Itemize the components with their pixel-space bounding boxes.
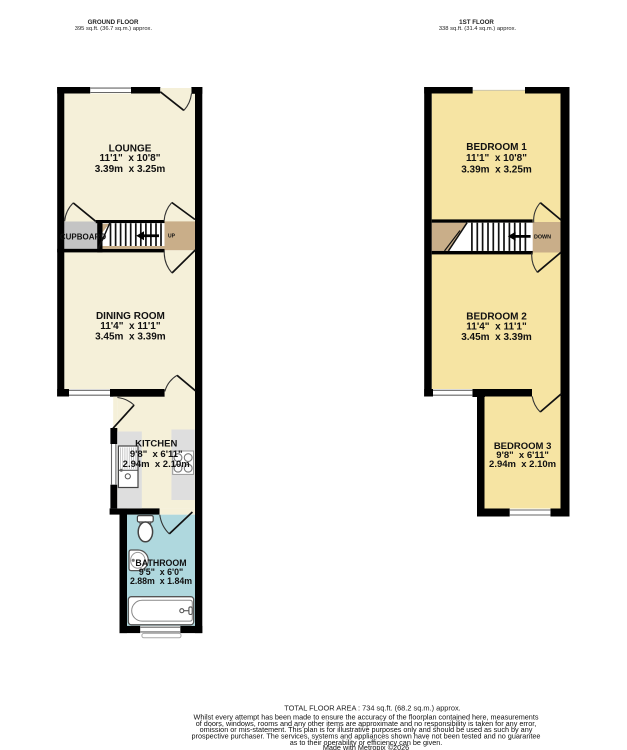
svg-text:11'4" x 11'1": 11'4" x 11'1": [466, 322, 527, 333]
svg-text:GROUND FLOOR: GROUND FLOOR: [88, 19, 139, 26]
svg-text:BEDROOM 1: BEDROOM 1: [466, 142, 527, 153]
svg-text:BEDROOM 2: BEDROOM 2: [466, 311, 527, 322]
svg-text:2.88m x 1.84m: 2.88m x 1.84m: [130, 576, 192, 586]
svg-text:3.39m x 3.25m: 3.39m x 3.25m: [95, 164, 166, 175]
svg-text:3.45m x 3.39m: 3.45m x 3.39m: [461, 332, 532, 343]
svg-text:11'1" x 10'8": 11'1" x 10'8": [466, 153, 527, 164]
svg-text:KITCHEN: KITCHEN: [135, 438, 177, 449]
svg-text:DOWN: DOWN: [534, 234, 551, 240]
svg-text:11'4" x 11'1": 11'4" x 11'1": [100, 321, 161, 332]
svg-text:TOTAL FLOOR AREA : 734 sq.ft.: TOTAL FLOOR AREA : 734 sq.ft. (68.2 sq.m…: [284, 704, 461, 713]
svg-text:DINING ROOM: DINING ROOM: [96, 311, 165, 322]
svg-text:395 sq.ft. (36.7 sq.m.) approx: 395 sq.ft. (36.7 sq.m.) approx.: [75, 26, 153, 32]
svg-text:2.94m x 2.10m: 2.94m x 2.10m: [123, 459, 190, 470]
svg-text:3.45m x 3.39m: 3.45m x 3.39m: [95, 332, 166, 343]
svg-text:3.39m x 3.25m: 3.39m x 3.25m: [461, 164, 532, 175]
svg-text:Made with Metropix ©2026: Made with Metropix ©2026: [323, 743, 409, 750]
svg-text:CUPBOARD: CUPBOARD: [60, 232, 106, 241]
svg-text:2.94m x 2.10m: 2.94m x 2.10m: [489, 459, 556, 470]
svg-text:1ST FLOOR: 1ST FLOOR: [459, 19, 494, 26]
svg-text:338 sq.ft. (31.4 sq.m.) approx: 338 sq.ft. (31.4 sq.m.) approx.: [439, 26, 517, 32]
svg-text:11'1" x 10'8": 11'1" x 10'8": [100, 153, 161, 164]
svg-text:UP: UP: [168, 233, 176, 239]
